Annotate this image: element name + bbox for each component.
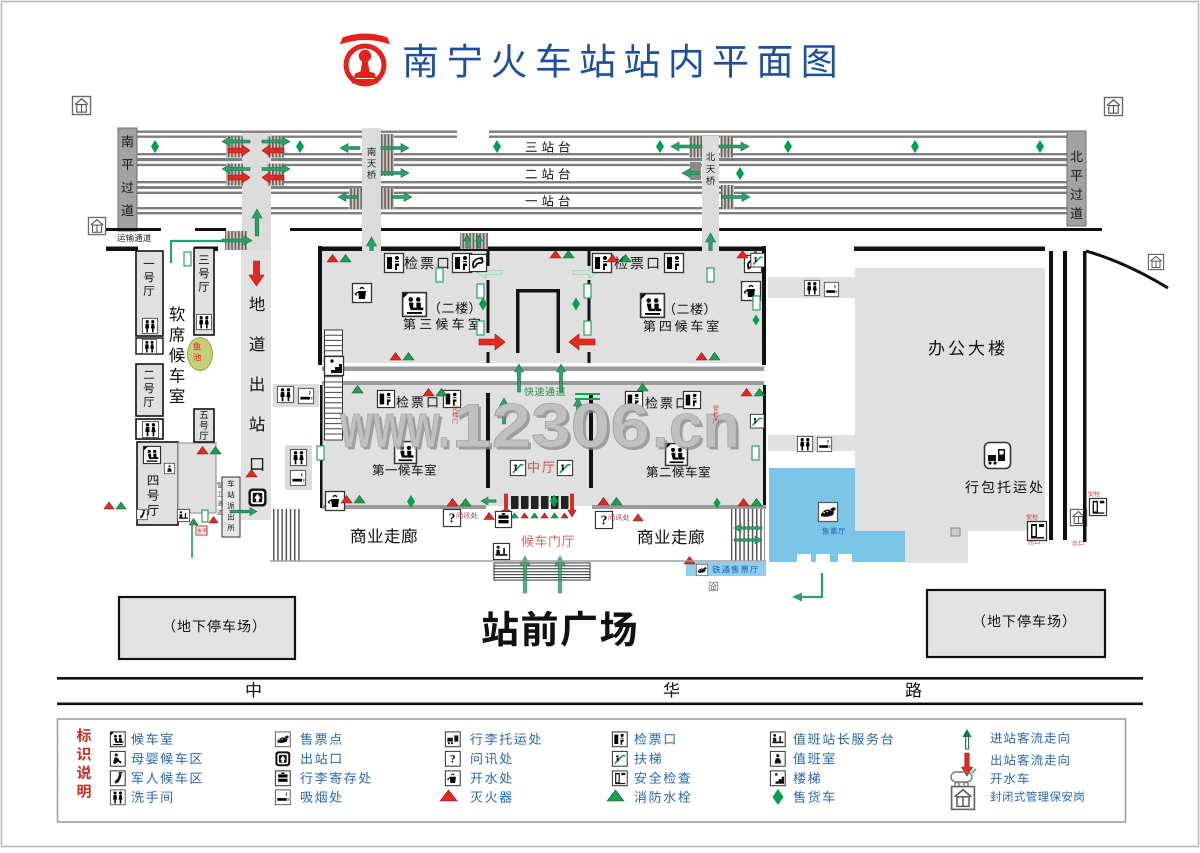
svg-text:www.: www. xyxy=(339,392,450,461)
svg-text:12306: 12306 xyxy=(452,392,650,461)
svg-text:.cn: .cn xyxy=(652,392,740,461)
